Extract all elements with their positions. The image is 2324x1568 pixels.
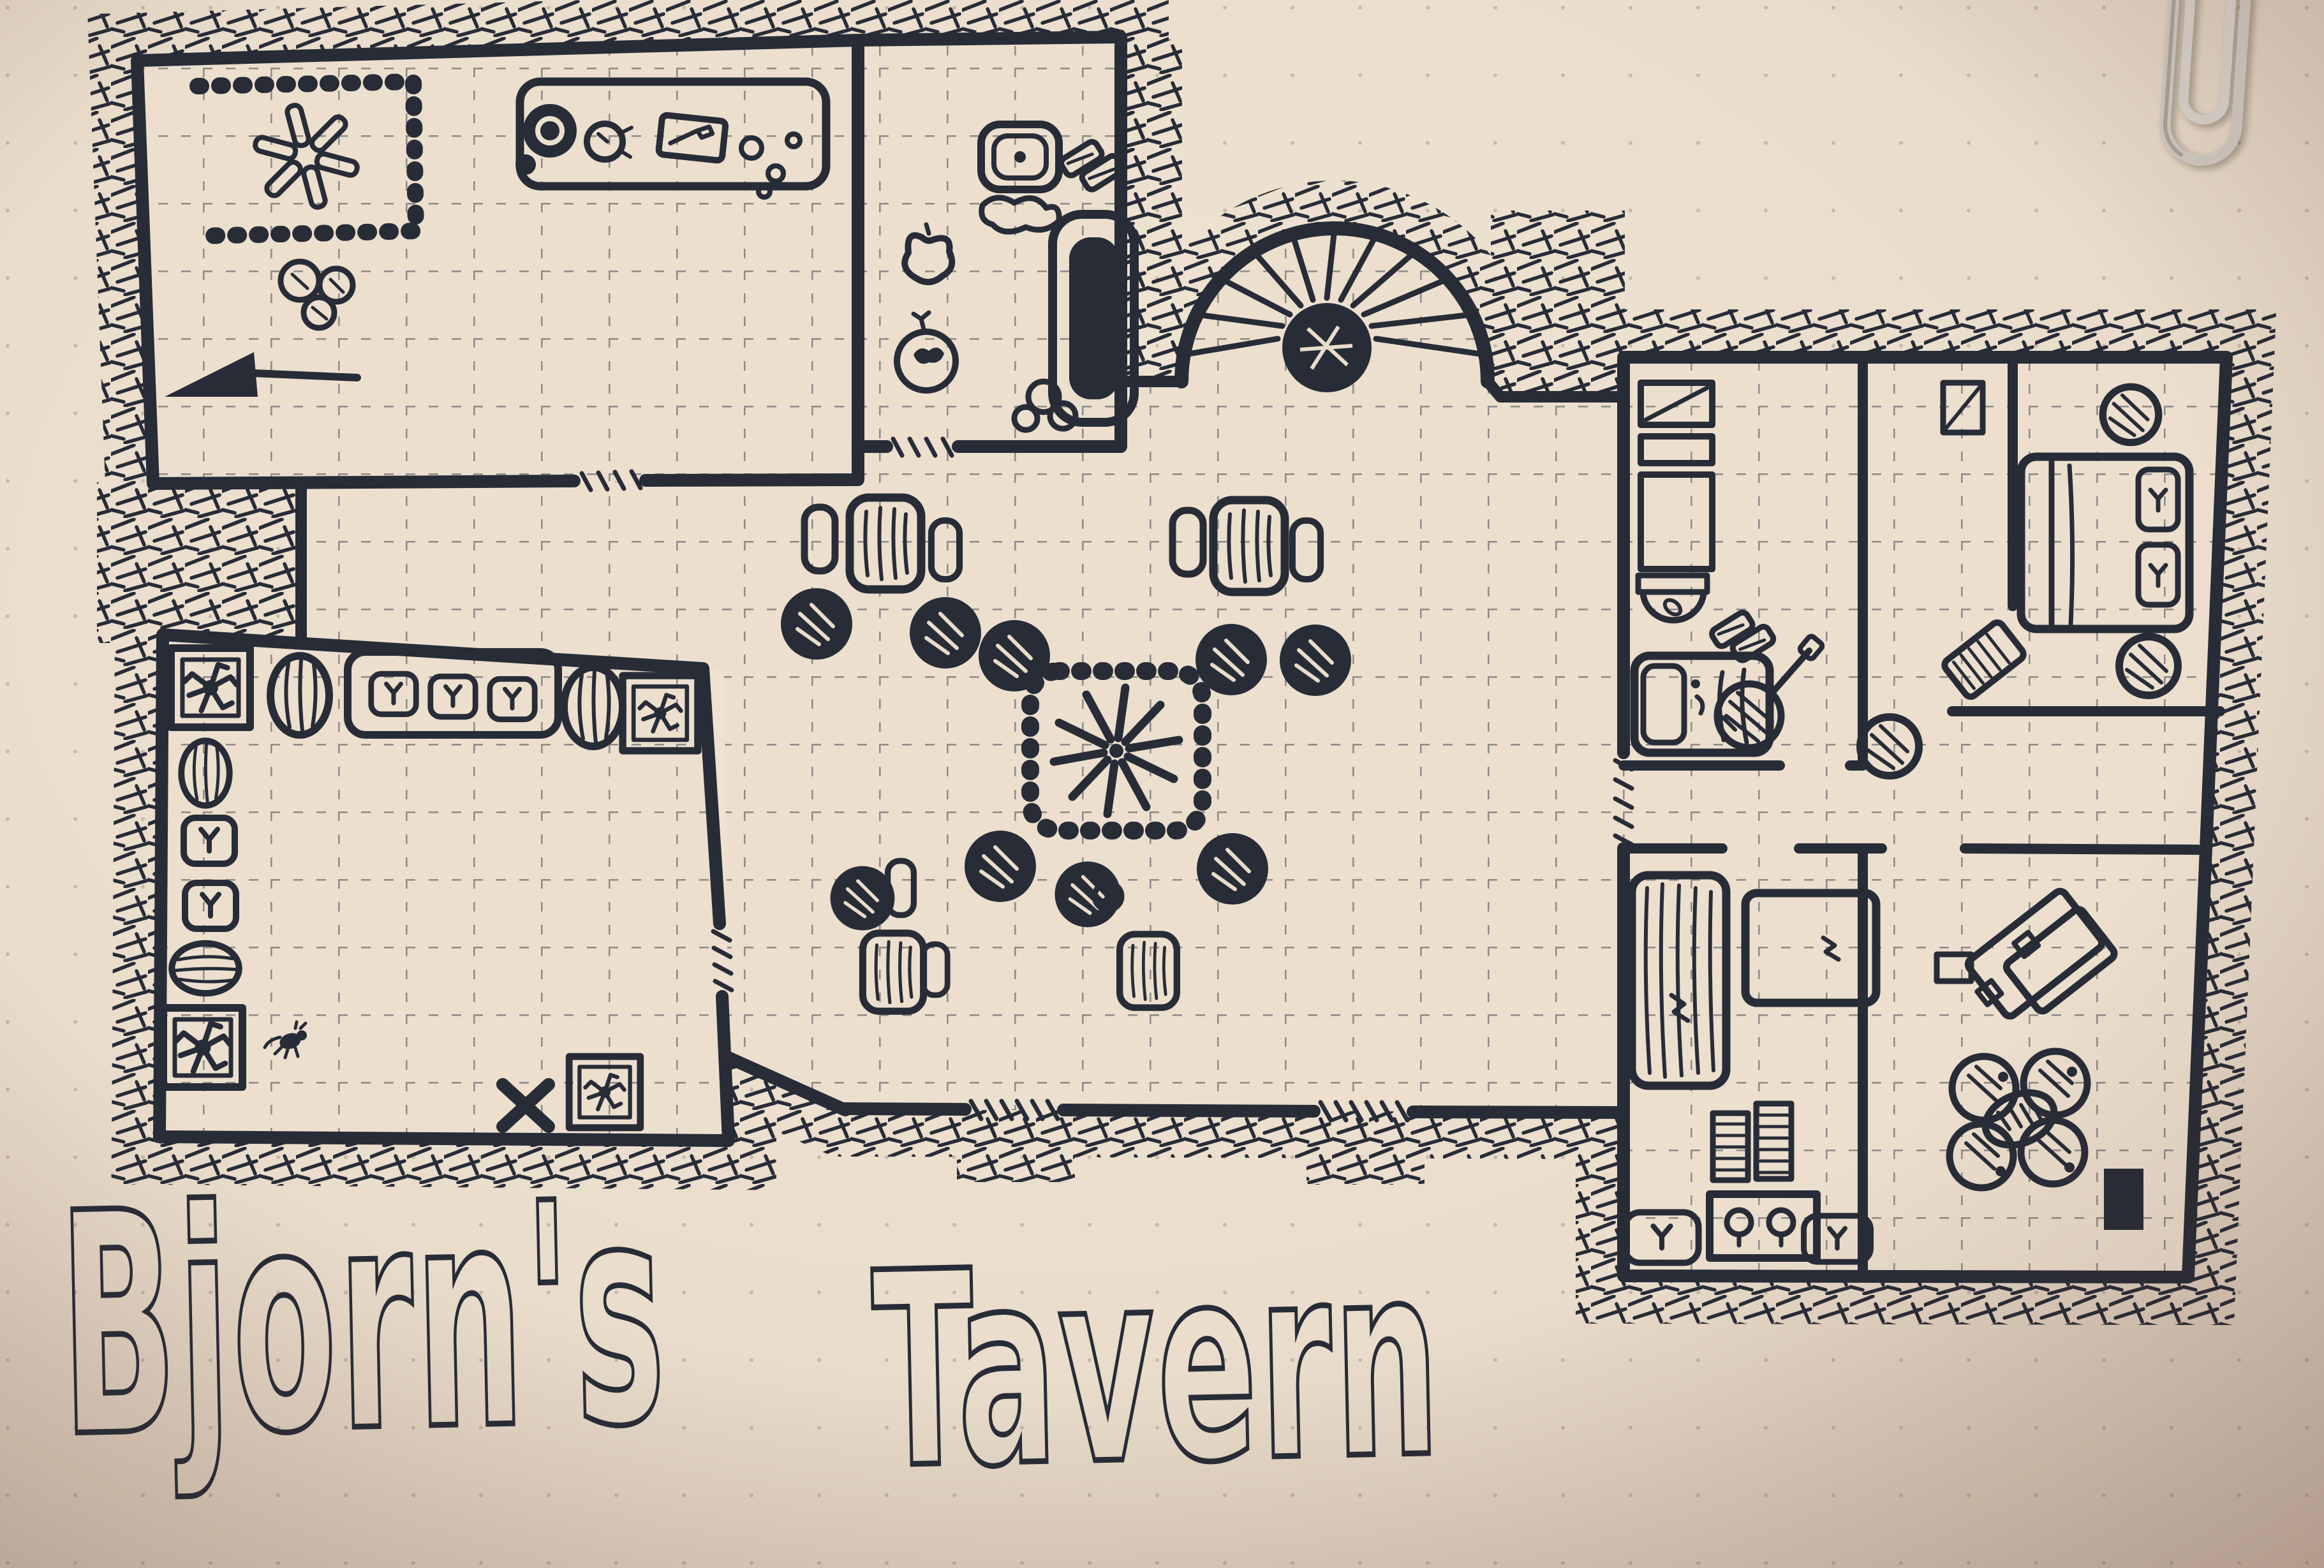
tavern-map-drawing: Bjorn's Tavern bbox=[0, 0, 2324, 1568]
photo-vignette bbox=[0, 0, 2324, 1568]
photographed-notebook-page: Bjorn's Tavern bbox=[0, 0, 2324, 1568]
